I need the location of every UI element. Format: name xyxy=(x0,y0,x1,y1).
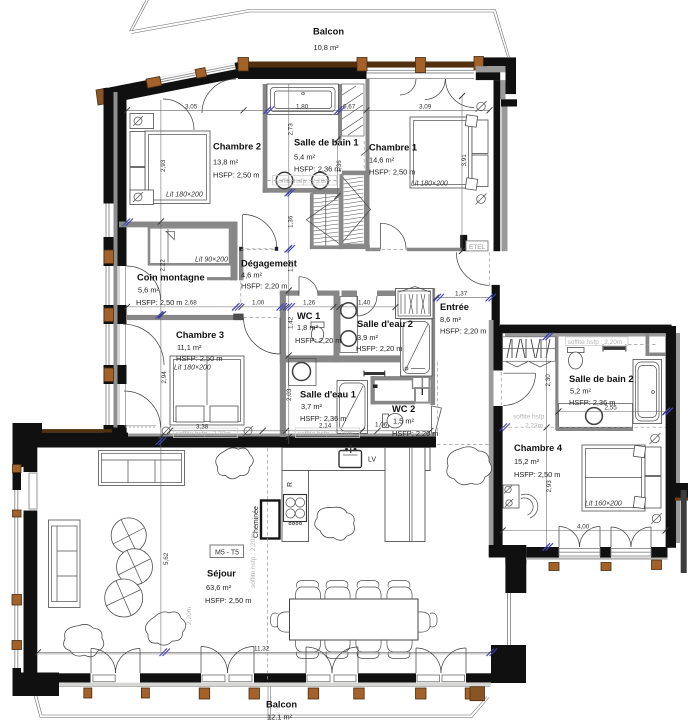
svg-text:10,8 m²: 10,8 m² xyxy=(314,43,340,52)
svg-text:5,4 m²: 5,4 m² xyxy=(294,153,315,162)
svg-text:2,94: 2,94 xyxy=(161,371,168,384)
svg-text:M5 - T5: M5 - T5 xyxy=(215,550,239,557)
svg-text:1,40: 1,40 xyxy=(358,300,371,307)
svg-text:Chambre 4: Chambre 4 xyxy=(514,443,563,453)
svg-text:3,7 m²: 3,7 m² xyxy=(301,402,322,411)
svg-text:1,06: 1,06 xyxy=(375,422,388,429)
svg-text:Salle d'eau 2: Salle d'eau 2 xyxy=(357,319,413,329)
svg-text:2,73: 2,73 xyxy=(287,123,294,136)
svg-text:Lit 90×200: Lit 90×200 xyxy=(195,257,228,264)
svg-text:Lit 160×200: Lit 160×200 xyxy=(585,501,622,508)
svg-text:2,22: 2,22 xyxy=(160,259,167,272)
svg-text:2,14: 2,14 xyxy=(319,423,332,430)
svg-text:15,2 m²: 15,2 m² xyxy=(514,457,540,466)
svg-text:14,6 m²: 14,6 m² xyxy=(369,156,395,165)
svg-text:Entrée: Entrée xyxy=(440,302,469,312)
svg-text:8,6 m²: 8,6 m² xyxy=(440,315,461,324)
svg-text:2,03: 2,03 xyxy=(286,388,293,401)
svg-text:13,8 m²: 13,8 m² xyxy=(213,158,239,167)
svg-text:Chambre 1: Chambre 1 xyxy=(369,143,417,153)
svg-text:HSFP: 2,50 m: HSFP: 2,50 m xyxy=(176,354,222,363)
svg-text:1,37: 1,37 xyxy=(455,291,468,298)
svg-text:5,2 m²: 5,2 m² xyxy=(570,387,591,396)
svg-text:Salle de bain 1: Salle de bain 1 xyxy=(294,138,359,148)
svg-text:1,5 m²: 1,5 m² xyxy=(393,417,414,426)
svg-text:WC 1: WC 1 xyxy=(297,311,320,321)
svg-text:2,93: 2,93 xyxy=(546,480,553,493)
svg-text:soffite hsfp: soffite hsfp xyxy=(513,414,545,421)
svg-text:1,36: 1,36 xyxy=(336,160,343,173)
svg-text:2,23m: 2,23m xyxy=(525,423,543,430)
svg-text:1,8 m²: 1,8 m² xyxy=(297,323,318,332)
svg-text:11,1 m²: 11,1 m² xyxy=(177,343,202,352)
svg-text:soffite hsfp : 2,20m: soffite hsfp : 2,20m xyxy=(275,178,330,185)
svg-text:5,6 m²: 5,6 m² xyxy=(138,286,159,295)
svg-text:HSFP: 2,20 m: HSFP: 2,20 m xyxy=(392,429,438,438)
svg-text:LV: LV xyxy=(368,457,376,464)
svg-text:Coin montagne: Coin montagne xyxy=(137,273,205,283)
svg-text:Balcon: Balcon xyxy=(266,700,297,710)
svg-text:3,05: 3,05 xyxy=(185,104,198,111)
svg-text:4,00: 4,00 xyxy=(577,524,590,531)
svg-text:WC 2: WC 2 xyxy=(392,404,415,414)
svg-text:2,93: 2,93 xyxy=(160,159,167,172)
svg-text:Chambre 3: Chambre 3 xyxy=(176,330,224,340)
svg-text:12,1 m²: 12,1 m² xyxy=(267,713,293,720)
svg-text:HSFP: 2,50 m: HSFP: 2,50 m xyxy=(213,171,259,180)
svg-text:Lit 180×200: Lit 180×200 xyxy=(174,365,211,372)
svg-text:HSFP: 2,50 m: HSFP: 2,50 m xyxy=(136,298,182,307)
svg-text:1,00: 1,00 xyxy=(252,300,265,307)
svg-text:HSFP: 2,20 m: HSFP: 2,20 m xyxy=(295,336,341,345)
svg-text:HSFP: 2,50 m: HSFP: 2,50 m xyxy=(205,596,251,605)
svg-text:3,91: 3,91 xyxy=(461,154,468,167)
svg-text:1,80: 1,80 xyxy=(296,104,309,111)
svg-text:2,68: 2,68 xyxy=(185,300,198,307)
svg-text:Lit 180×200: Lit 180×200 xyxy=(411,181,448,188)
svg-text:HSFP: 2,36 m: HSFP: 2,36 m xyxy=(294,165,340,174)
svg-text:HSFP: 2,20 m: HSFP: 2,20 m xyxy=(440,327,486,336)
svg-text:Lit 180×200: Lit 180×200 xyxy=(166,192,203,199)
svg-text:Séjour: Séjour xyxy=(207,569,236,579)
svg-text:1,36: 1,36 xyxy=(287,215,294,228)
svg-text:11,32: 11,32 xyxy=(254,645,270,652)
svg-text:3,38: 3,38 xyxy=(196,424,209,431)
svg-text:3,09: 3,09 xyxy=(419,104,432,111)
svg-text:Salle d'eau 1: Salle d'eau 1 xyxy=(300,390,356,400)
svg-text:0,67: 0,67 xyxy=(343,104,356,111)
svg-text:2,55: 2,55 xyxy=(605,405,618,412)
svg-text:1,02: 1,02 xyxy=(287,259,294,272)
svg-text:soffite hsfp : 2,20m: soffite hsfp : 2,20m xyxy=(298,431,353,438)
svg-text:HSFP: 2,50 m: HSFP: 2,50 m xyxy=(369,168,415,177)
svg-text:Chambre 2: Chambre 2 xyxy=(213,142,261,152)
svg-text:R: R xyxy=(287,482,294,487)
svg-text:HSFP: 2,50 m: HSFP: 2,50 m xyxy=(514,470,560,479)
svg-text:soffite hsfp : 2,20m: soffite hsfp : 2,20m xyxy=(250,533,257,588)
svg-text:1,26: 1,26 xyxy=(303,300,316,307)
svg-text:1,42: 1,42 xyxy=(287,316,294,329)
svg-text:5,62: 5,62 xyxy=(163,552,170,565)
svg-text:Balcon: Balcon xyxy=(313,27,344,37)
svg-text:63,6 m²: 63,6 m² xyxy=(206,583,232,592)
svg-text:2,20m: 2,20m xyxy=(186,607,193,625)
svg-text:4,6 m²: 4,6 m² xyxy=(241,271,262,280)
svg-text:HSFP: 2,20 m: HSFP: 2,20 m xyxy=(241,282,287,291)
svg-text:HSFP: 2,20 m: HSFP: 2,20 m xyxy=(356,344,402,353)
svg-text:ETEL: ETEL xyxy=(469,244,486,251)
svg-text:3,9 m²: 3,9 m² xyxy=(357,333,378,342)
svg-text:soffite hsfp : 2,20m: soffite hsfp : 2,20m xyxy=(176,431,231,438)
svg-text:Salle de bain 2: Salle de bain 2 xyxy=(569,374,634,384)
svg-text:2,30: 2,30 xyxy=(545,374,552,387)
svg-text:soffite hsfp : 2,20m: soffite hsfp : 2,20m xyxy=(568,339,623,346)
